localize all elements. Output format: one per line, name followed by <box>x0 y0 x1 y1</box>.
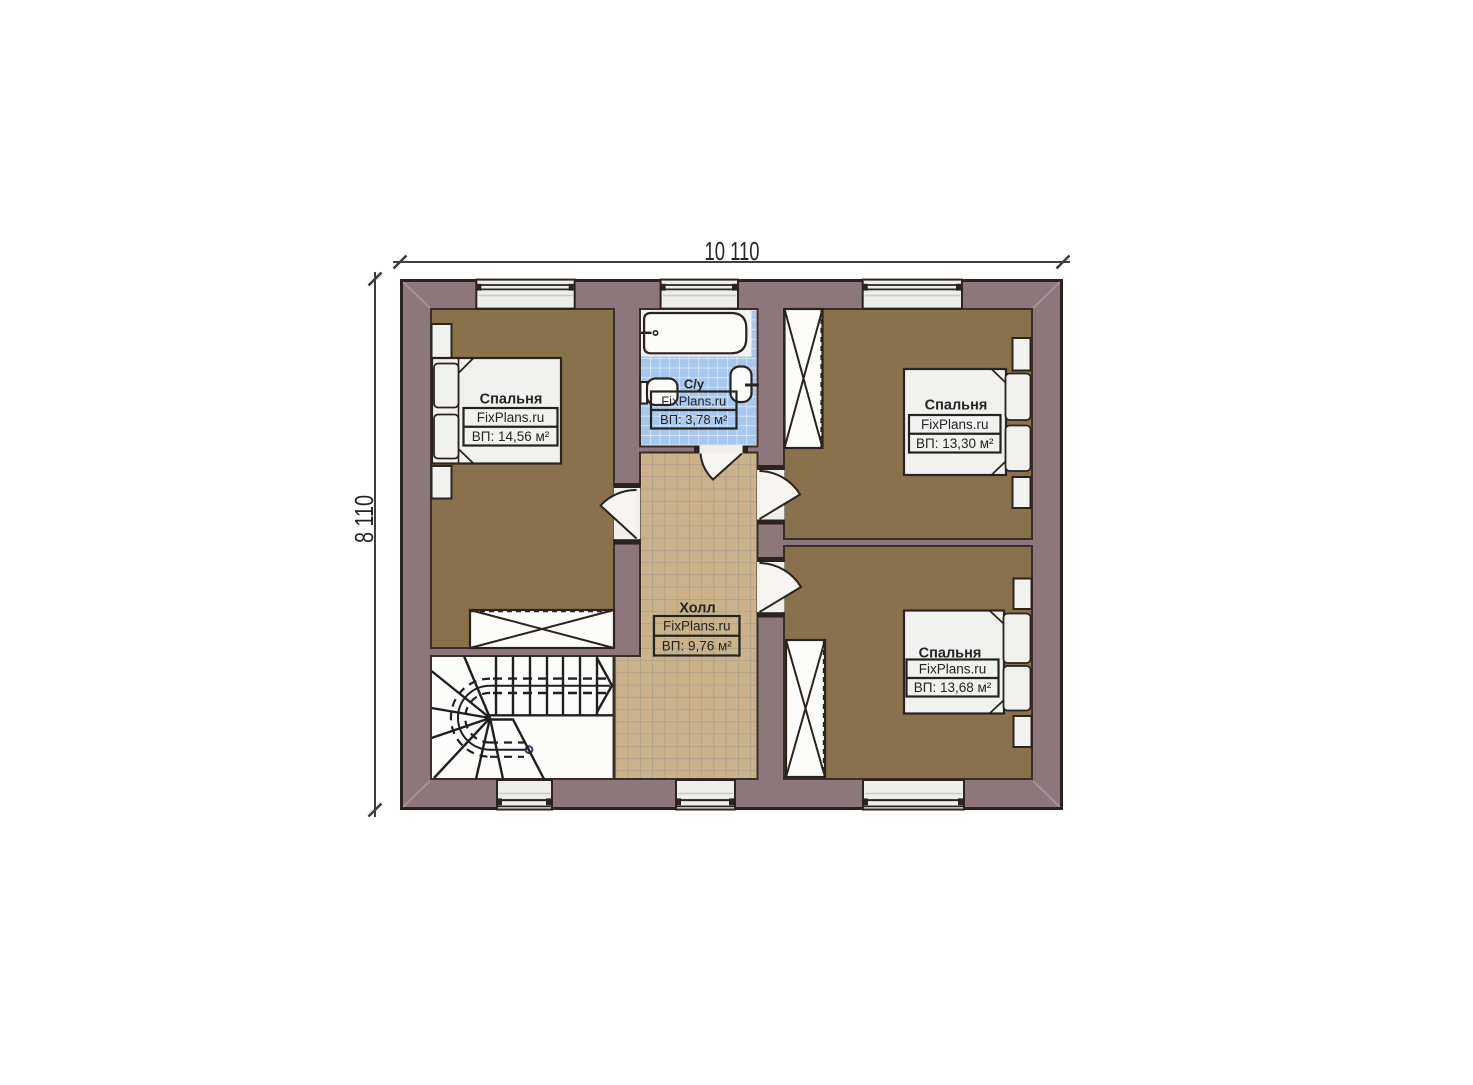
svg-text:FixPlans.ru: FixPlans.ru <box>921 417 989 432</box>
svg-text:8 110: 8 110 <box>349 495 379 543</box>
svg-text:ВП: 3,78 м²: ВП: 3,78 м² <box>660 412 728 427</box>
svg-text:Холл: Холл <box>679 601 715 617</box>
svg-text:С/у: С/у <box>684 377 705 392</box>
svg-text:ВП: 13,30 м²: ВП: 13,30 м² <box>916 436 994 451</box>
svg-text:Спальня: Спальня <box>480 392 543 408</box>
svg-text:ВП: 13,68 м²: ВП: 13,68 м² <box>914 680 992 695</box>
svg-text:FixPlans.ru: FixPlans.ru <box>663 619 731 634</box>
svg-text:FixPlans.ru: FixPlans.ru <box>919 662 987 677</box>
svg-text:ВП: 14,56 м²: ВП: 14,56 м² <box>472 429 550 444</box>
svg-text:10 110: 10 110 <box>705 236 760 266</box>
svg-text:Спальня: Спальня <box>925 398 988 414</box>
svg-text:FixPlans.ru: FixPlans.ru <box>661 394 726 409</box>
svg-text:FixPlans.ru: FixPlans.ru <box>477 410 545 425</box>
svg-text:ВП: 9,76 м²: ВП: 9,76 м² <box>662 638 733 653</box>
